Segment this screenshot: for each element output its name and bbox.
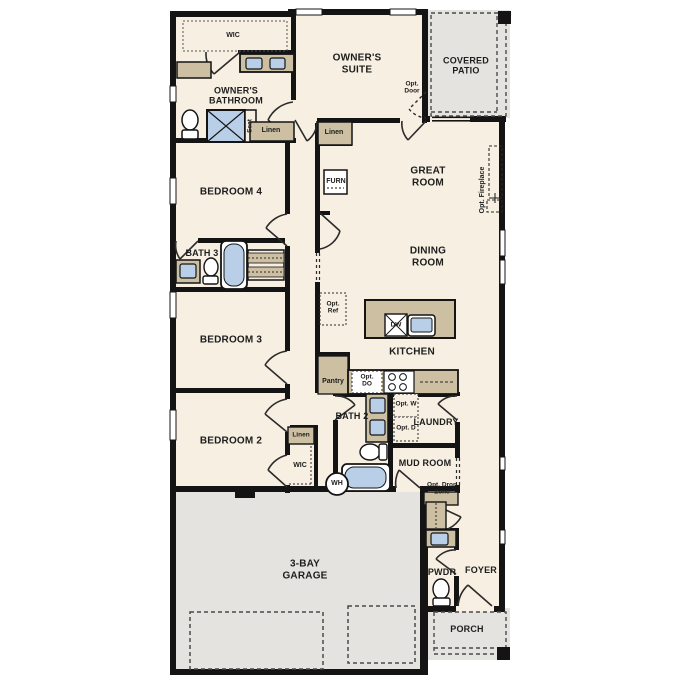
owners-linen-closet	[250, 122, 294, 141]
owners-shower	[207, 110, 256, 142]
foyer-closet	[426, 502, 446, 529]
bed2-linen-closet	[288, 427, 314, 444]
laundry-appliances	[394, 394, 418, 441]
pwdr-sink	[431, 533, 448, 545]
kitchen-sink	[408, 315, 435, 336]
bath2-tub	[342, 464, 390, 491]
owners-toilet	[182, 110, 198, 139]
patio-post	[498, 11, 511, 24]
kitchen-counter	[348, 370, 458, 394]
opt-dryer	[394, 417, 418, 441]
range	[384, 371, 414, 393]
bath2-toilet	[360, 444, 387, 460]
floor-plan-graphics	[0, 0, 687, 687]
bath3-toilet	[203, 258, 218, 284]
bath3-sink	[180, 264, 196, 278]
kitchen-island	[365, 300, 455, 338]
furnace	[324, 170, 347, 194]
porch-post	[497, 647, 510, 660]
opt-double-oven	[352, 371, 382, 393]
bath3-shelves	[248, 250, 284, 280]
opt-washer	[394, 394, 418, 417]
pantry-floor	[318, 356, 348, 394]
floor-plan: WIC OWNER'S BATHROOM OWNER'S SUITE Opt. …	[0, 0, 687, 687]
water-heater	[326, 473, 348, 495]
opt-refrigerator	[320, 293, 346, 325]
wic-dresser	[177, 62, 211, 78]
hall-linen-closet	[318, 122, 352, 145]
owners-vanity	[240, 54, 294, 72]
bath3-tub	[221, 241, 247, 289]
